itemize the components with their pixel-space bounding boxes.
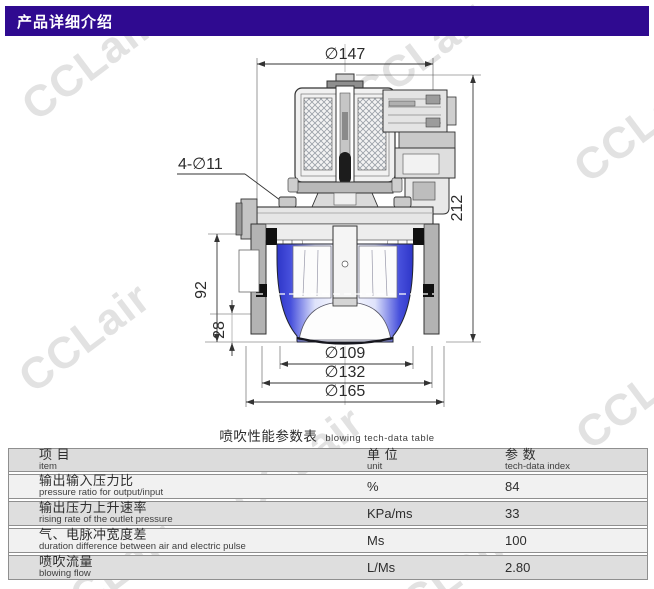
item-en: pressure ratio for output/input — [39, 488, 367, 498]
table-row: 喷吹流量 blowing flow L/Ms 2.80 — [9, 555, 647, 580]
row-value: 100 — [505, 529, 647, 552]
row-value: 33 — [505, 502, 647, 525]
table-title-en: blowing tech-data table — [325, 433, 434, 444]
item-cn: 气、电脉冲宽度差 — [39, 529, 367, 541]
dim-label-4x11: 4-∅11 — [178, 156, 223, 173]
header-item-cn: 项 目 — [39, 449, 367, 461]
dim-label-28: 28 — [211, 321, 228, 339]
header-value: 参 数 tech-data index — [505, 449, 647, 471]
table-row: 输出输入压力比 pressure ratio for output/input … — [9, 474, 647, 499]
data-value: 84 — [505, 480, 647, 493]
header-unit-cn: 单 位 — [367, 449, 505, 461]
item-cn: 喷吹流量 — [39, 556, 367, 568]
product-detail-page: CCLair CCLair CCLair CCLair CCLair CCLai… — [0, 0, 654, 589]
dim-label-132: ∅132 — [325, 364, 366, 381]
dim-label-147: ∅147 — [325, 46, 366, 63]
item-cn: 输出输入压力比 — [39, 475, 367, 487]
row-item: 喷吹流量 blowing flow — [9, 556, 367, 579]
item-cn: 输出压力上升速率 — [39, 502, 367, 514]
dim-label-109: ∅109 — [325, 345, 366, 362]
table-row: 气、电脉冲宽度差 duration difference between air… — [9, 528, 647, 553]
section-header-bar: 产品详细介绍 — [5, 6, 649, 36]
table-title: 喷吹性能参数表blowing tech-data table — [0, 425, 654, 445]
valve-cross-section-drawing: ∅147 212 4-∅11 92 28 — [0, 0, 654, 420]
header-unit: 单 位 unit — [367, 449, 505, 471]
dim-label-92: 92 — [193, 281, 210, 299]
header-item: 项 目 item — [9, 449, 367, 471]
row-item: 输出输入压力比 pressure ratio for output/input — [9, 475, 367, 498]
data-value: 100 — [505, 534, 647, 547]
item-en: duration difference between air and elec… — [39, 542, 367, 552]
header-unit-en: unit — [367, 462, 505, 472]
row-item: 气、电脉冲宽度差 duration difference between air… — [9, 529, 367, 552]
header-item-en: item — [39, 462, 367, 472]
dim-label-212: 212 — [449, 195, 466, 222]
table-header-row: 项 目 item 单 位 unit 参 数 tech-data index — [9, 448, 647, 472]
unit-value: KPa/ms — [367, 507, 505, 520]
tech-data-table: 项 目 item 单 位 unit 参 数 tech-data index 输出… — [8, 448, 648, 580]
data-value: 33 — [505, 507, 647, 520]
dimension-bolt-holes: 4-∅11 — [177, 156, 288, 206]
row-item: 输出压力上升速率 rising rate of the outlet press… — [9, 502, 367, 525]
row-unit: L/Ms — [367, 556, 505, 579]
row-value: 2.80 — [505, 556, 647, 579]
dimension-outlet-diameters: ∅109 ∅132 ∅165 — [246, 345, 444, 407]
header-value-cn: 参 数 — [505, 449, 647, 461]
data-value: 2.80 — [505, 561, 647, 574]
row-value: 84 — [505, 475, 647, 498]
item-en: blowing flow — [39, 569, 367, 579]
table-title-cn: 喷吹性能参数表 — [219, 429, 317, 444]
unit-value: L/Ms — [367, 561, 505, 574]
item-en: rising rate of the outlet pressure — [39, 515, 367, 525]
table-row: 输出压力上升速率 rising rate of the outlet press… — [9, 501, 647, 526]
unit-value: % — [367, 480, 505, 493]
row-unit: % — [367, 475, 505, 498]
header-value-en: tech-data index — [505, 462, 647, 472]
dim-label-165: ∅165 — [325, 383, 366, 400]
row-unit: KPa/ms — [367, 502, 505, 525]
page-title: 产品详细介绍 — [5, 11, 113, 32]
unit-value: Ms — [367, 534, 505, 547]
row-unit: Ms — [367, 529, 505, 552]
